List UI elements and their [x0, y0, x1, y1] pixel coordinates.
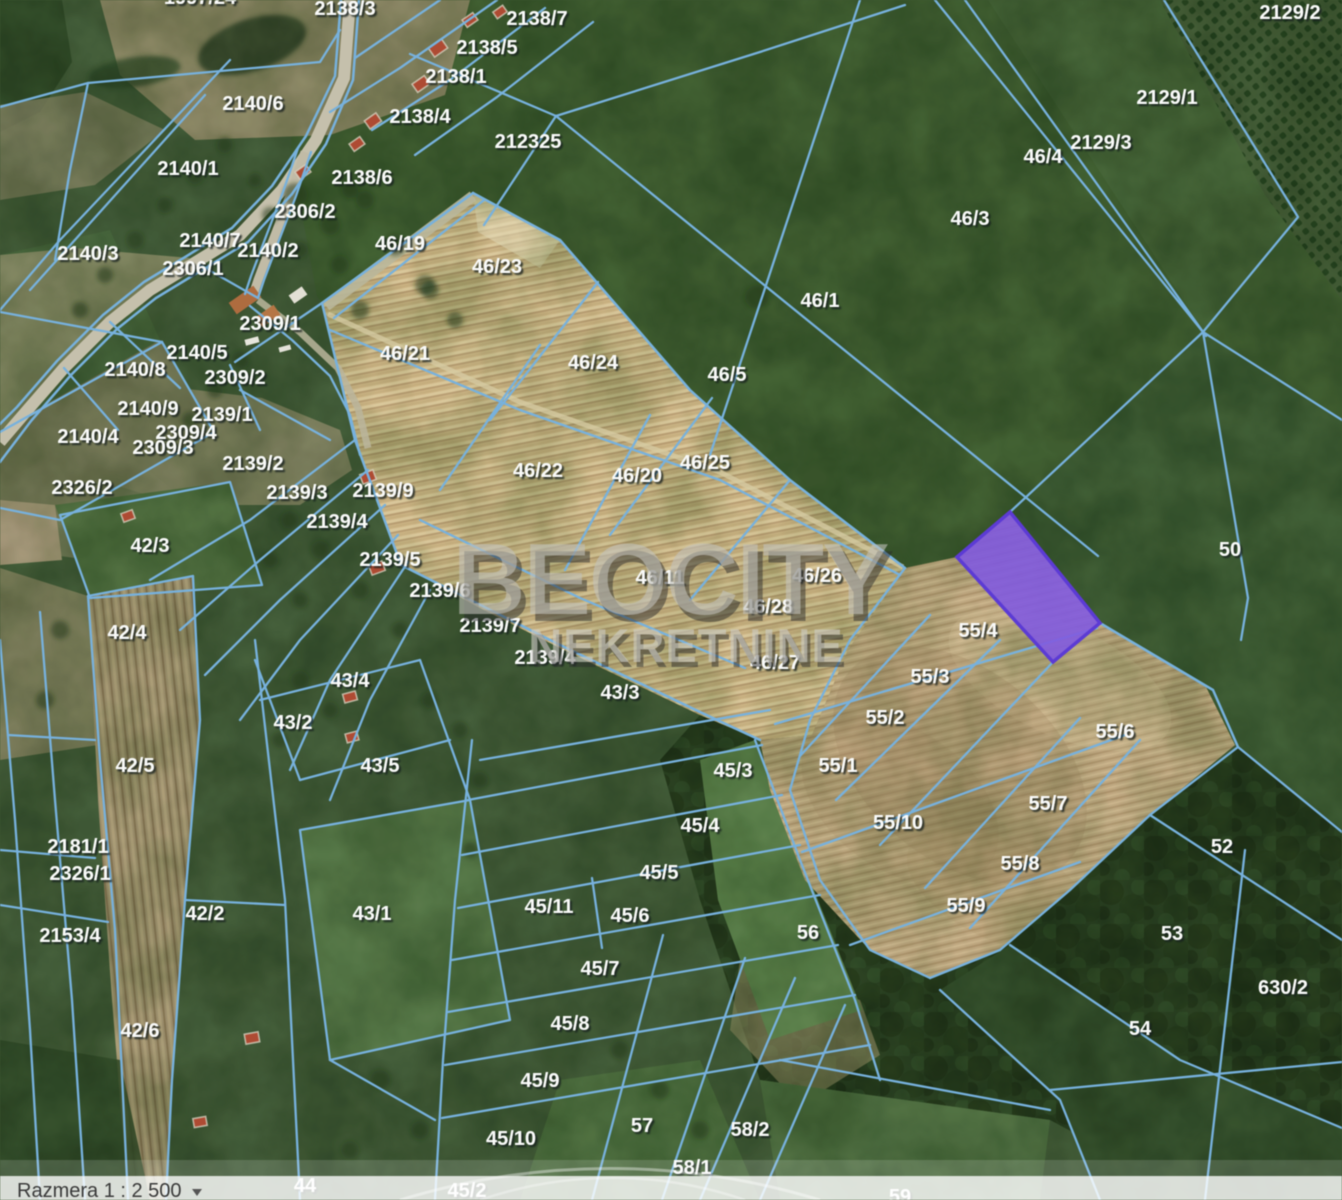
- svg-text:Razmera 1 : 2 500: Razmera 1 : 2 500: [17, 1180, 182, 1200]
